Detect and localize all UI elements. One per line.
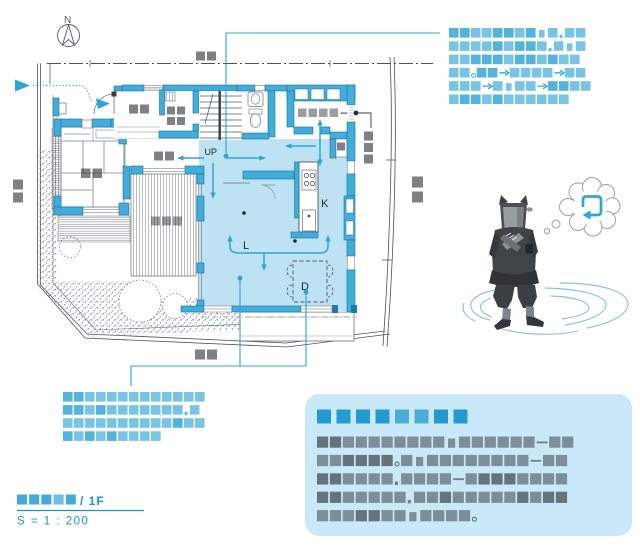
svg-text:K: K: [321, 198, 329, 210]
svg-text:UP: UP: [205, 147, 218, 157]
svg-text:/ 1F: / 1F: [80, 494, 105, 508]
svg-text:L: L: [243, 240, 249, 252]
svg-text:S = 1 : 200: S = 1 : 200: [17, 516, 89, 528]
